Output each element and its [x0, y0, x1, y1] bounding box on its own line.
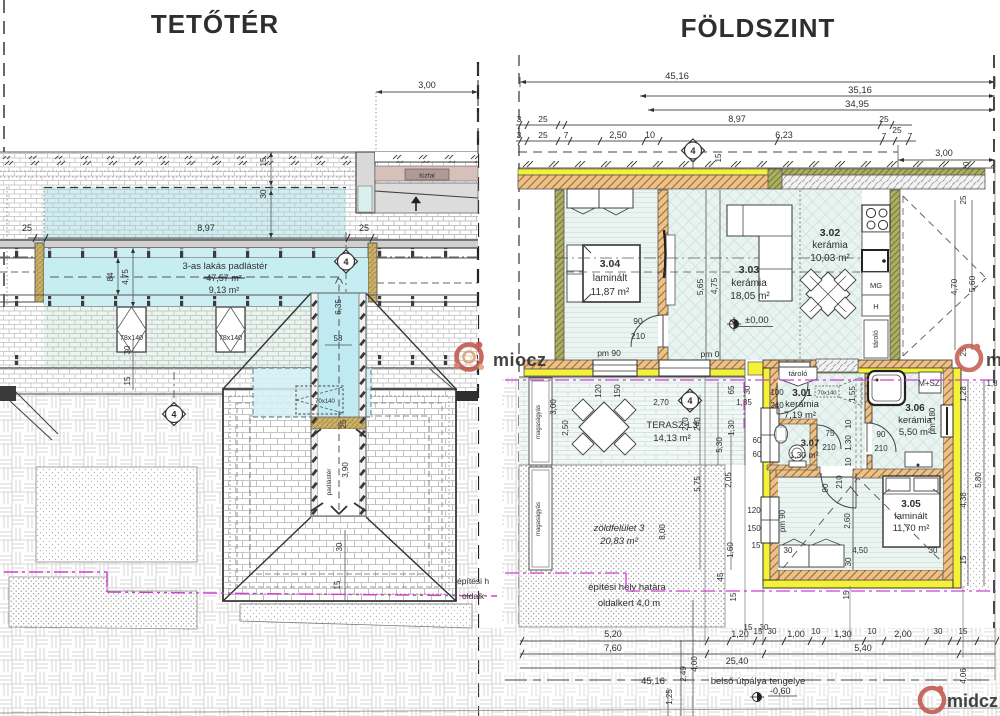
svg-text:2,49: 2,49	[679, 666, 688, 682]
svg-text:90: 90	[877, 430, 886, 439]
svg-text:tároló: tároló	[789, 369, 808, 378]
svg-text:270: 270	[681, 417, 690, 431]
svg-text:1,60: 1,60	[726, 542, 735, 558]
svg-text:120: 120	[594, 384, 603, 398]
svg-text:6,35: 6,35	[334, 299, 343, 315]
svg-text:1,30: 1,30	[727, 420, 736, 436]
svg-text:3,00: 3,00	[418, 80, 436, 90]
svg-text:70x140: 70x140	[817, 391, 836, 397]
svg-text:3.01: 3.01	[792, 388, 812, 399]
svg-text:oldalkert 4,0 m: oldalkert 4,0 m	[598, 598, 660, 609]
svg-text:4,38: 4,38	[959, 492, 968, 508]
svg-text:5,65: 5,65	[695, 278, 705, 295]
svg-text:10: 10	[645, 130, 655, 140]
svg-text:30: 30	[335, 542, 344, 551]
svg-text:45: 45	[716, 572, 725, 581]
svg-text:5,20: 5,20	[604, 629, 622, 639]
svg-text:15: 15	[752, 541, 761, 550]
svg-text:miocz: miocz	[493, 350, 547, 370]
svg-text:15: 15	[729, 592, 738, 601]
svg-text:25: 25	[959, 195, 968, 204]
svg-text:3,00: 3,00	[935, 148, 953, 158]
svg-text:1,28: 1,28	[959, 386, 968, 402]
svg-text:kerámia: kerámia	[812, 240, 848, 251]
svg-text:3.04: 3.04	[600, 258, 621, 270]
svg-text:210: 210	[835, 475, 844, 489]
svg-text:35,16: 35,16	[848, 85, 872, 96]
svg-text:4,75: 4,75	[121, 269, 130, 285]
svg-text:pm 90: pm 90	[597, 348, 621, 358]
svg-text:11,87 m²: 11,87 m²	[591, 287, 630, 298]
svg-text:14,13 m²: 14,13 m²	[653, 433, 691, 444]
svg-text:mi: mi	[986, 350, 1000, 370]
svg-text:78x140: 78x140	[120, 335, 143, 342]
svg-text:25: 25	[359, 223, 369, 233]
svg-text:10: 10	[844, 419, 853, 428]
svg-text:1,55: 1,55	[848, 386, 857, 402]
svg-text:10: 10	[868, 627, 877, 636]
svg-text:70x140: 70x140	[315, 399, 335, 405]
svg-text:25: 25	[538, 130, 548, 140]
svg-text:1,30 m²: 1,30 m²	[790, 450, 819, 460]
svg-text:3: 3	[517, 130, 522, 140]
svg-text:18,05 m²: 18,05 m²	[730, 291, 770, 302]
svg-text:30: 30	[259, 189, 268, 198]
svg-text:építési h: építési h	[457, 576, 489, 586]
svg-text:padlástér: padlástér	[326, 468, 333, 496]
svg-text:4,06: 4,06	[959, 668, 968, 684]
svg-text:4: 4	[343, 257, 348, 267]
svg-text:7: 7	[882, 131, 887, 141]
svg-text:20,83 m²: 20,83 m²	[599, 536, 638, 547]
svg-text:4,70: 4,70	[949, 278, 959, 295]
svg-text:15: 15	[123, 376, 132, 385]
svg-text:34,95: 34,95	[845, 99, 869, 110]
svg-text:oldalk: oldalk	[462, 591, 485, 601]
svg-text:30: 30	[934, 627, 943, 636]
svg-text:FÖLDSZINT: FÖLDSZINT	[681, 13, 836, 43]
svg-text:8,97: 8,97	[728, 114, 746, 124]
svg-text:30: 30	[844, 557, 853, 566]
svg-text:30: 30	[760, 623, 769, 632]
svg-text:5,80: 5,80	[974, 472, 983, 488]
svg-text:45,16: 45,16	[641, 676, 665, 687]
svg-text:90: 90	[821, 483, 830, 492]
svg-text:78x140: 78x140	[219, 335, 242, 342]
svg-text:60: 60	[753, 450, 762, 459]
svg-text:10: 10	[812, 627, 821, 636]
svg-text:3: 3	[517, 114, 522, 124]
svg-text:11,70 m²: 11,70 m²	[893, 523, 930, 534]
svg-text:4,50: 4,50	[852, 546, 868, 555]
svg-text:MG: MG	[870, 281, 882, 290]
svg-text:84: 84	[106, 272, 115, 281]
svg-text:5,40: 5,40	[854, 643, 872, 653]
svg-text:210: 210	[874, 444, 888, 453]
svg-text:15: 15	[333, 580, 342, 589]
svg-text:kerámia: kerámia	[731, 278, 767, 289]
svg-text:1,30: 1,30	[834, 629, 852, 639]
svg-text:3.07: 3.07	[801, 438, 820, 449]
svg-text:2,70: 2,70	[653, 398, 669, 407]
svg-text:2,50: 2,50	[609, 130, 627, 140]
svg-text:3.02: 3.02	[820, 227, 841, 239]
svg-text:1,25: 1,25	[665, 689, 674, 705]
svg-text:10,03 m²: 10,03 m²	[810, 253, 850, 264]
svg-text:3-as lakás padlástér: 3-as lakás padlástér	[182, 261, 267, 272]
svg-text:25: 25	[538, 114, 548, 124]
svg-text:pm 90: pm 90	[778, 509, 787, 532]
svg-text:75: 75	[826, 429, 835, 438]
svg-text:kerámia: kerámia	[785, 399, 820, 410]
svg-text:3.06: 3.06	[905, 403, 925, 414]
svg-text:4: 4	[687, 396, 692, 406]
svg-text:2,50: 2,50	[561, 420, 570, 436]
svg-text:25: 25	[879, 114, 889, 124]
svg-text:5,30: 5,30	[715, 437, 724, 453]
svg-text:5,60: 5,60	[967, 275, 977, 292]
svg-text:pm 180: pm 180	[928, 407, 937, 434]
svg-text:4: 4	[171, 410, 176, 420]
svg-text:tároló: tároló	[873, 330, 880, 348]
svg-text:H: H	[873, 302, 878, 311]
svg-text:2,05: 2,05	[724, 472, 733, 488]
svg-text:150: 150	[747, 524, 761, 533]
svg-text:10: 10	[844, 457, 853, 466]
svg-text:1,30: 1,30	[844, 435, 853, 451]
svg-text:15: 15	[714, 153, 723, 162]
svg-text:25: 25	[892, 125, 902, 135]
svg-text:210: 210	[631, 331, 645, 341]
svg-text:4,00: 4,00	[690, 656, 699, 672]
svg-text:65: 65	[727, 385, 736, 394]
svg-text:15: 15	[259, 157, 268, 166]
svg-text:TETŐTÉR: TETŐTÉR	[151, 9, 279, 39]
svg-text:laminált: laminált	[895, 511, 928, 522]
svg-text:±0,00: ±0,00	[745, 315, 769, 326]
svg-text:7: 7	[564, 130, 569, 140]
svg-text:4: 4	[690, 146, 695, 156]
svg-text:laminált: laminált	[593, 273, 628, 284]
svg-text:midcz: midcz	[947, 691, 998, 711]
svg-text:25,40: 25,40	[726, 656, 749, 666]
svg-text:1,00: 1,00	[787, 629, 805, 639]
svg-text:pm 0: pm 0	[701, 349, 720, 359]
svg-text:magaságyás: magaságyás	[536, 502, 542, 536]
svg-text:-0,60: -0,60	[770, 686, 791, 696]
svg-text:60: 60	[753, 436, 762, 445]
svg-text:240: 240	[770, 401, 784, 410]
svg-text:45,16: 45,16	[665, 71, 689, 82]
svg-text:3.03: 3.03	[739, 264, 760, 276]
svg-text:150: 150	[613, 384, 622, 398]
svg-text:8,97: 8,97	[197, 223, 215, 233]
svg-text:3.05: 3.05	[901, 499, 921, 510]
svg-text:7: 7	[908, 131, 913, 141]
svg-text:15: 15	[959, 555, 968, 564]
svg-text:4,75: 4,75	[709, 277, 719, 294]
svg-text:tüzfal: tüzfal	[419, 173, 435, 180]
svg-text:3,90: 3,90	[341, 462, 350, 478]
svg-text:5,50 m²: 5,50 m²	[899, 427, 931, 438]
svg-text:58: 58	[334, 334, 343, 343]
svg-text:30: 30	[768, 627, 777, 636]
svg-text:belső útpálya tengelye: belső útpálya tengelye	[711, 676, 806, 687]
svg-text:3,00: 3,00	[549, 399, 558, 415]
svg-text:25: 25	[339, 419, 348, 428]
svg-text:30: 30	[929, 546, 938, 555]
svg-text:8,00: 8,00	[658, 524, 667, 540]
svg-text:120: 120	[747, 506, 761, 515]
svg-text:5,75: 5,75	[693, 476, 702, 492]
svg-text:210: 210	[822, 443, 836, 452]
svg-text:2,60: 2,60	[843, 513, 852, 529]
svg-text:240: 240	[693, 417, 702, 431]
svg-text:magaságyás: magaságyás	[536, 405, 542, 439]
svg-text:7,19 m²: 7,19 m²	[784, 410, 816, 421]
svg-text:zöldfelület 3: zöldfelület 3	[593, 523, 645, 534]
svg-text:9,13 m²: 9,13 m²	[209, 285, 240, 295]
svg-text:6,23: 6,23	[775, 130, 793, 140]
svg-text:30: 30	[784, 546, 793, 555]
svg-text:7,60: 7,60	[604, 643, 622, 653]
svg-text:100: 100	[770, 388, 784, 397]
svg-text:25: 25	[22, 223, 32, 233]
svg-text:30: 30	[123, 345, 132, 354]
svg-text:2,00: 2,00	[894, 629, 912, 639]
svg-text:90: 90	[633, 316, 643, 326]
